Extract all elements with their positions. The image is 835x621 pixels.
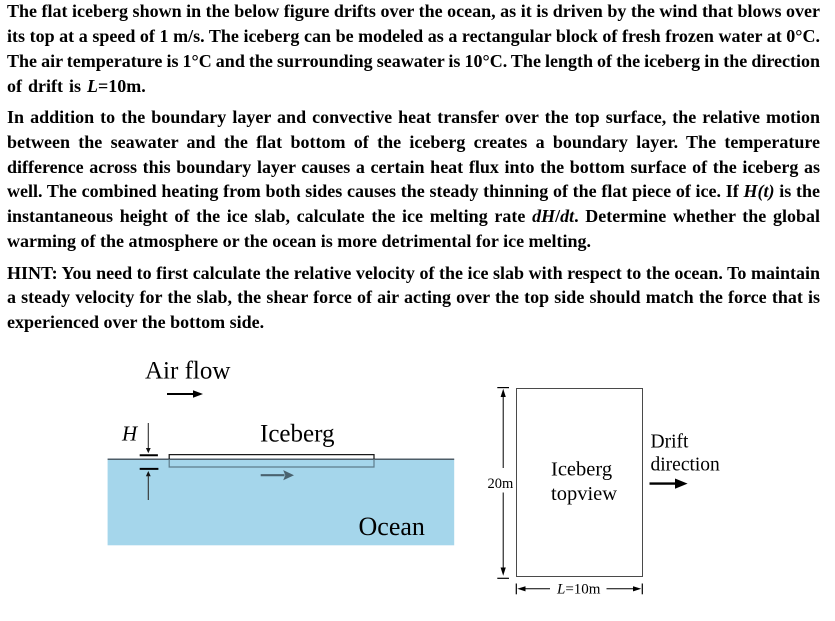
svg-text:L=10m: L=10m (556, 582, 601, 598)
svg-text:H: H (121, 421, 139, 445)
svg-text:Iceberg: Iceberg (260, 421, 335, 448)
svg-text:Ocean: Ocean (359, 512, 425, 541)
svg-text:Iceberg: Iceberg (551, 459, 612, 481)
svg-text:direction: direction (651, 455, 721, 476)
svg-text:20m: 20m (488, 476, 515, 492)
svg-text:Air flow: Air flow (145, 358, 230, 385)
svg-text:Drift: Drift (651, 432, 689, 453)
svg-text:topview: topview (551, 483, 617, 505)
